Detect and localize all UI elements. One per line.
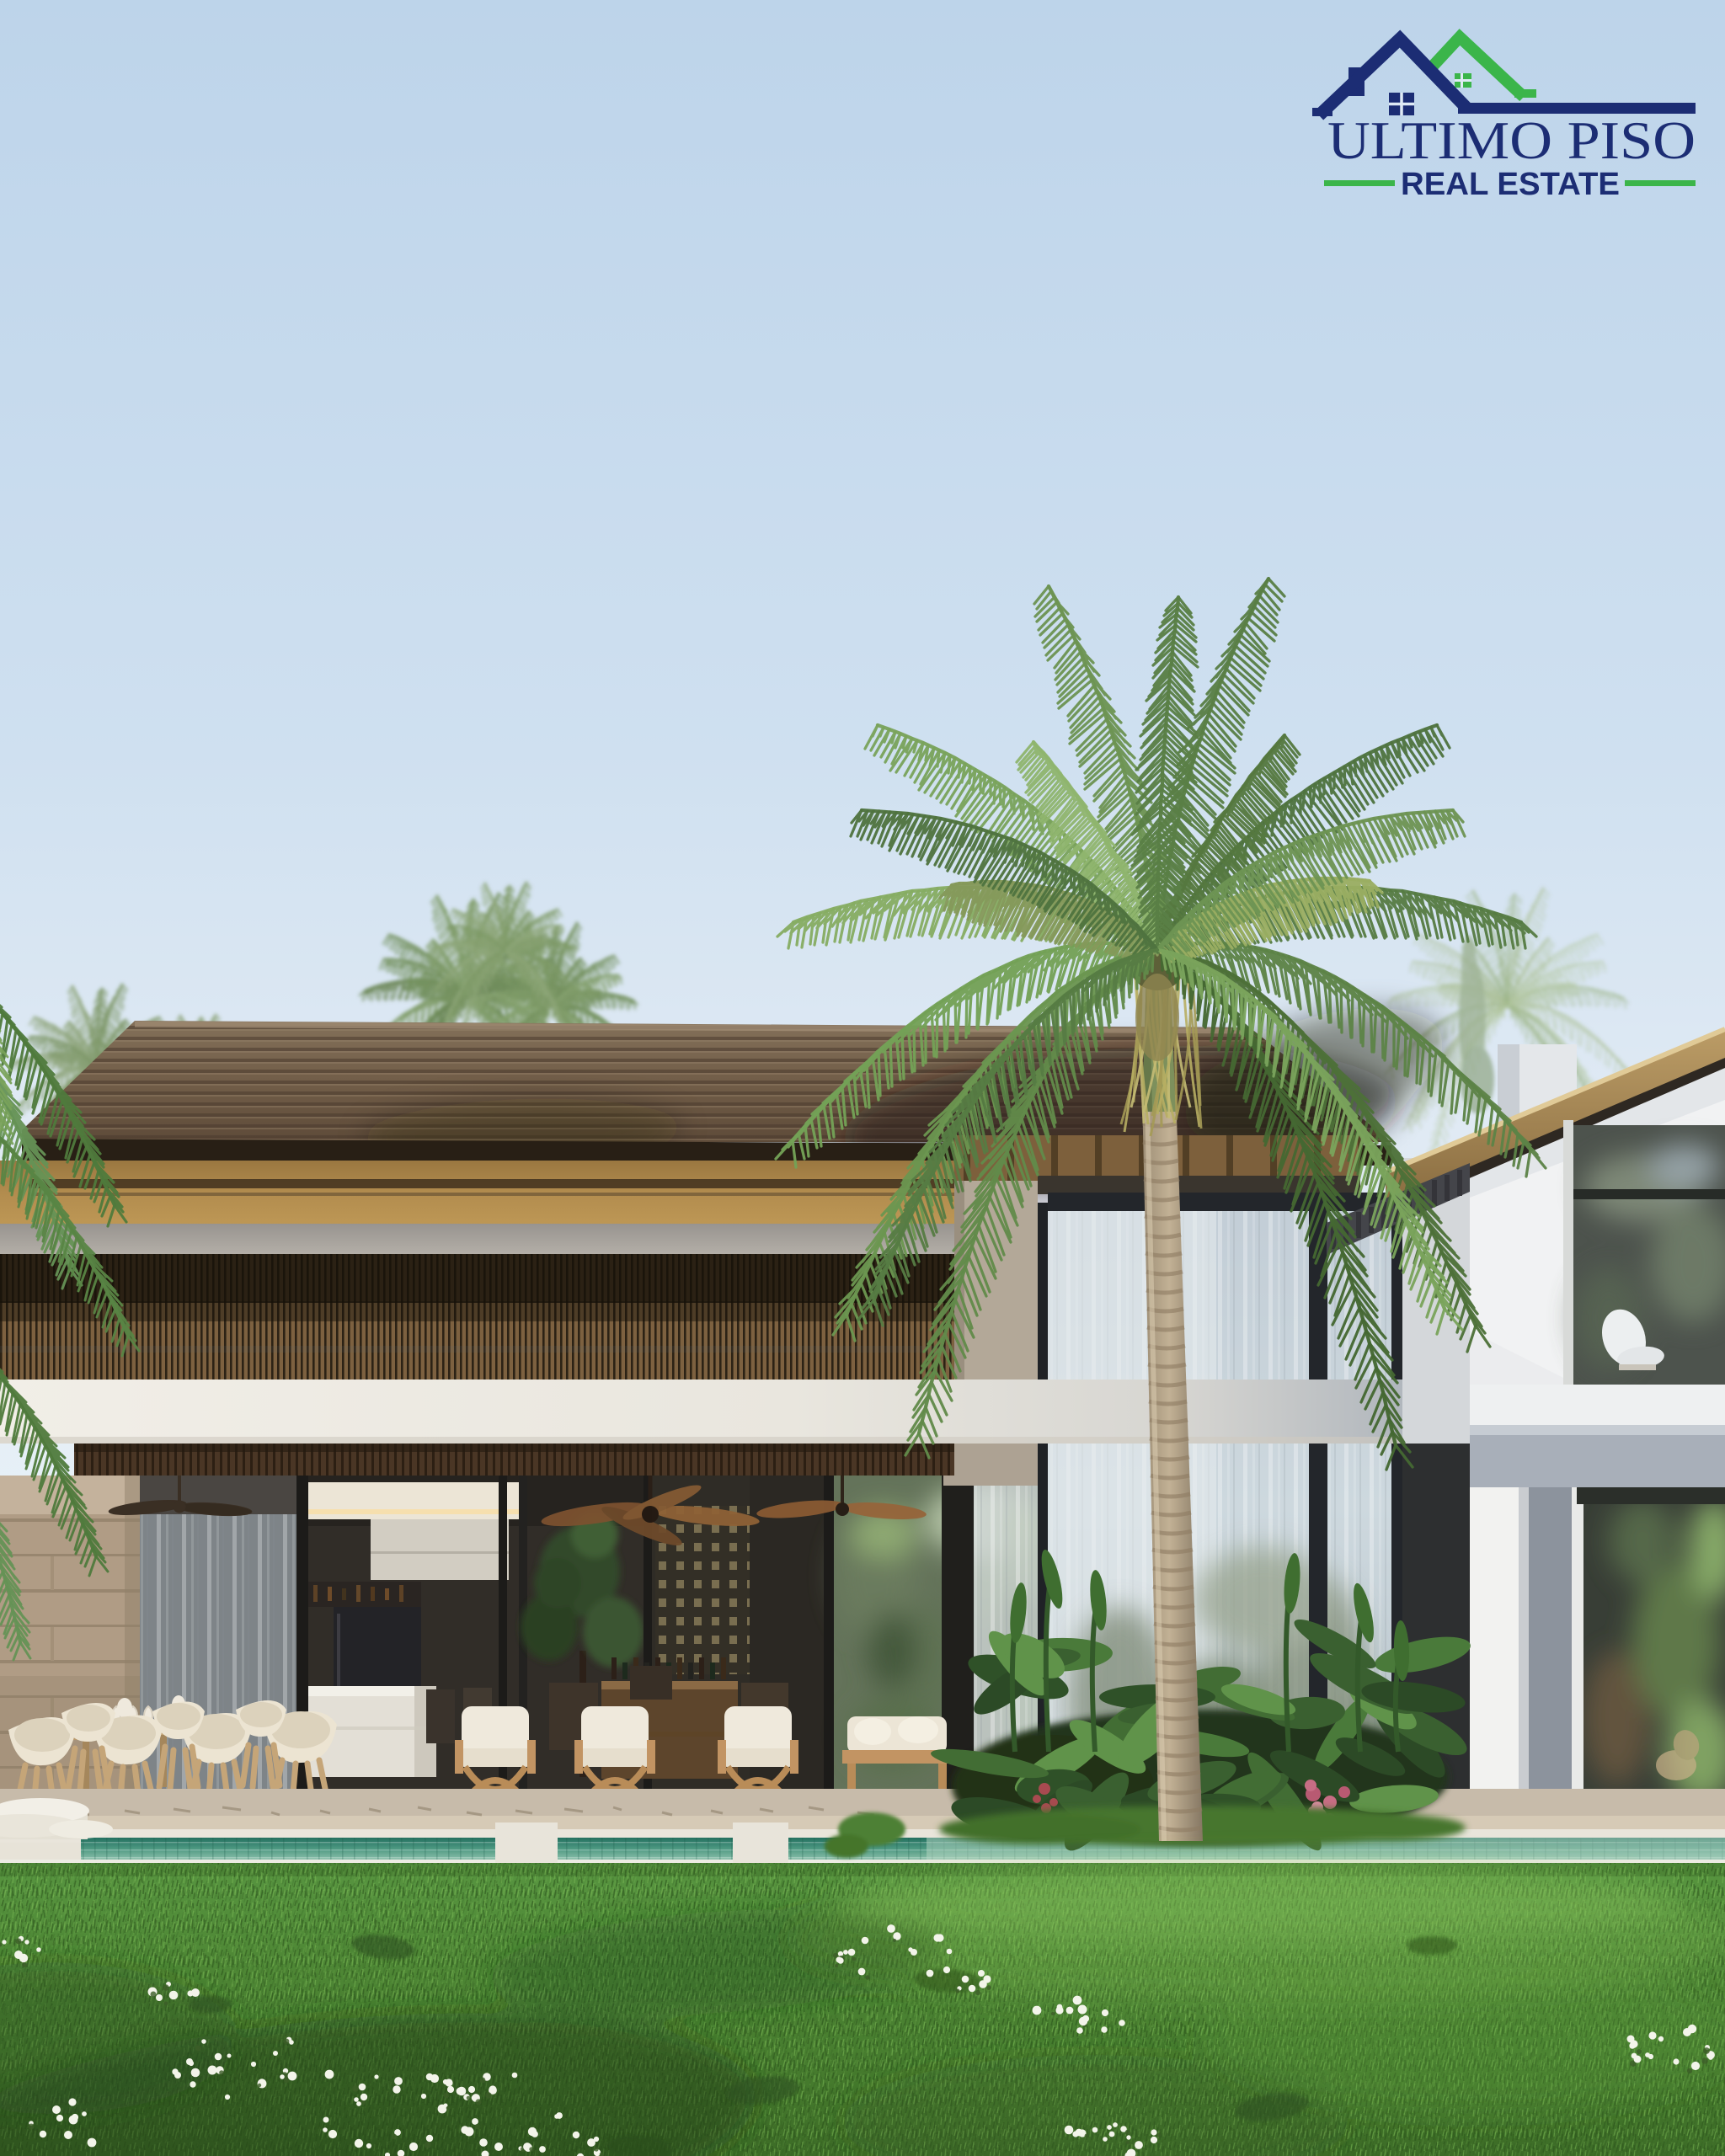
svg-text:ULTIMO PISO: ULTIMO PISO [1327,110,1696,170]
svg-text:REAL ESTATE: REAL ESTATE [1401,167,1620,202]
